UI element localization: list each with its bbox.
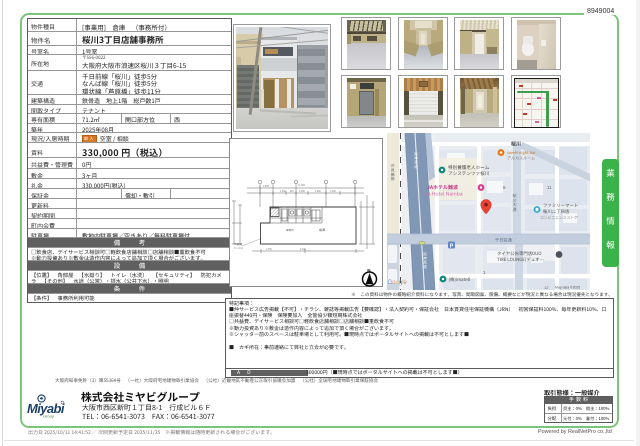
svg-text:Map data ©2025: Map data ©2025	[555, 286, 580, 290]
svg-text:阪神高速: 阪神高速	[422, 251, 427, 269]
svg-text:コンビニエンスストア: コンビニエンスストア	[540, 215, 578, 221]
svg-text:3,180: 3,180	[330, 191, 336, 193]
svg-text:N: N	[367, 268, 370, 273]
svg-text:2,800: 2,800	[263, 186, 269, 188]
svg-text:Google: Google	[388, 280, 408, 286]
svg-text:倉庫: 倉庫	[319, 227, 326, 232]
svg-text:1,900: 1,900	[315, 191, 321, 193]
svg-text:桜川二丁目店: 桜川二丁目店	[543, 209, 570, 215]
svg-text:9,100: 9,100	[300, 249, 306, 251]
svg-text:11: 11	[547, 185, 552, 190]
svg-text:910: 910	[290, 191, 295, 193]
svg-text:12: 12	[544, 285, 549, 290]
svg-text:アルカスルーム: アルカスルーム	[507, 156, 535, 162]
svg-text:桜川: 桜川	[511, 141, 521, 148]
svg-text:汐見橋筋: 汐見橋筋	[390, 163, 395, 181]
svg-text:TIRE LOUNGE(デュオ…: TIRE LOUNGE(デュオ…	[497, 257, 544, 263]
svg-text:(株)imatell: (株)imatell	[449, 277, 471, 283]
svg-text:JA Hotel Namba: JA Hotel Namba	[425, 191, 463, 198]
svg-text:千日前通: 千日前通	[495, 238, 513, 244]
svg-text:11,300: 11,300	[298, 185, 306, 187]
svg-text:アシステンツァ桜川: アシステンツァ桜川	[448, 171, 490, 177]
svg-text:事務所: 事務所	[286, 228, 294, 232]
svg-text:P: P	[450, 243, 454, 249]
svg-text:1,360: 1,360	[280, 191, 286, 193]
svg-text:阪神高速: 阪神高速	[413, 151, 418, 169]
svg-text:S=1/100: S=1/100	[234, 246, 244, 250]
svg-text:Group: Group	[43, 414, 55, 419]
svg-text:1,380: 1,380	[299, 191, 305, 193]
svg-text:1,750: 1,750	[266, 249, 272, 251]
svg-text:桜川大通: 桜川大通	[512, 193, 518, 212]
